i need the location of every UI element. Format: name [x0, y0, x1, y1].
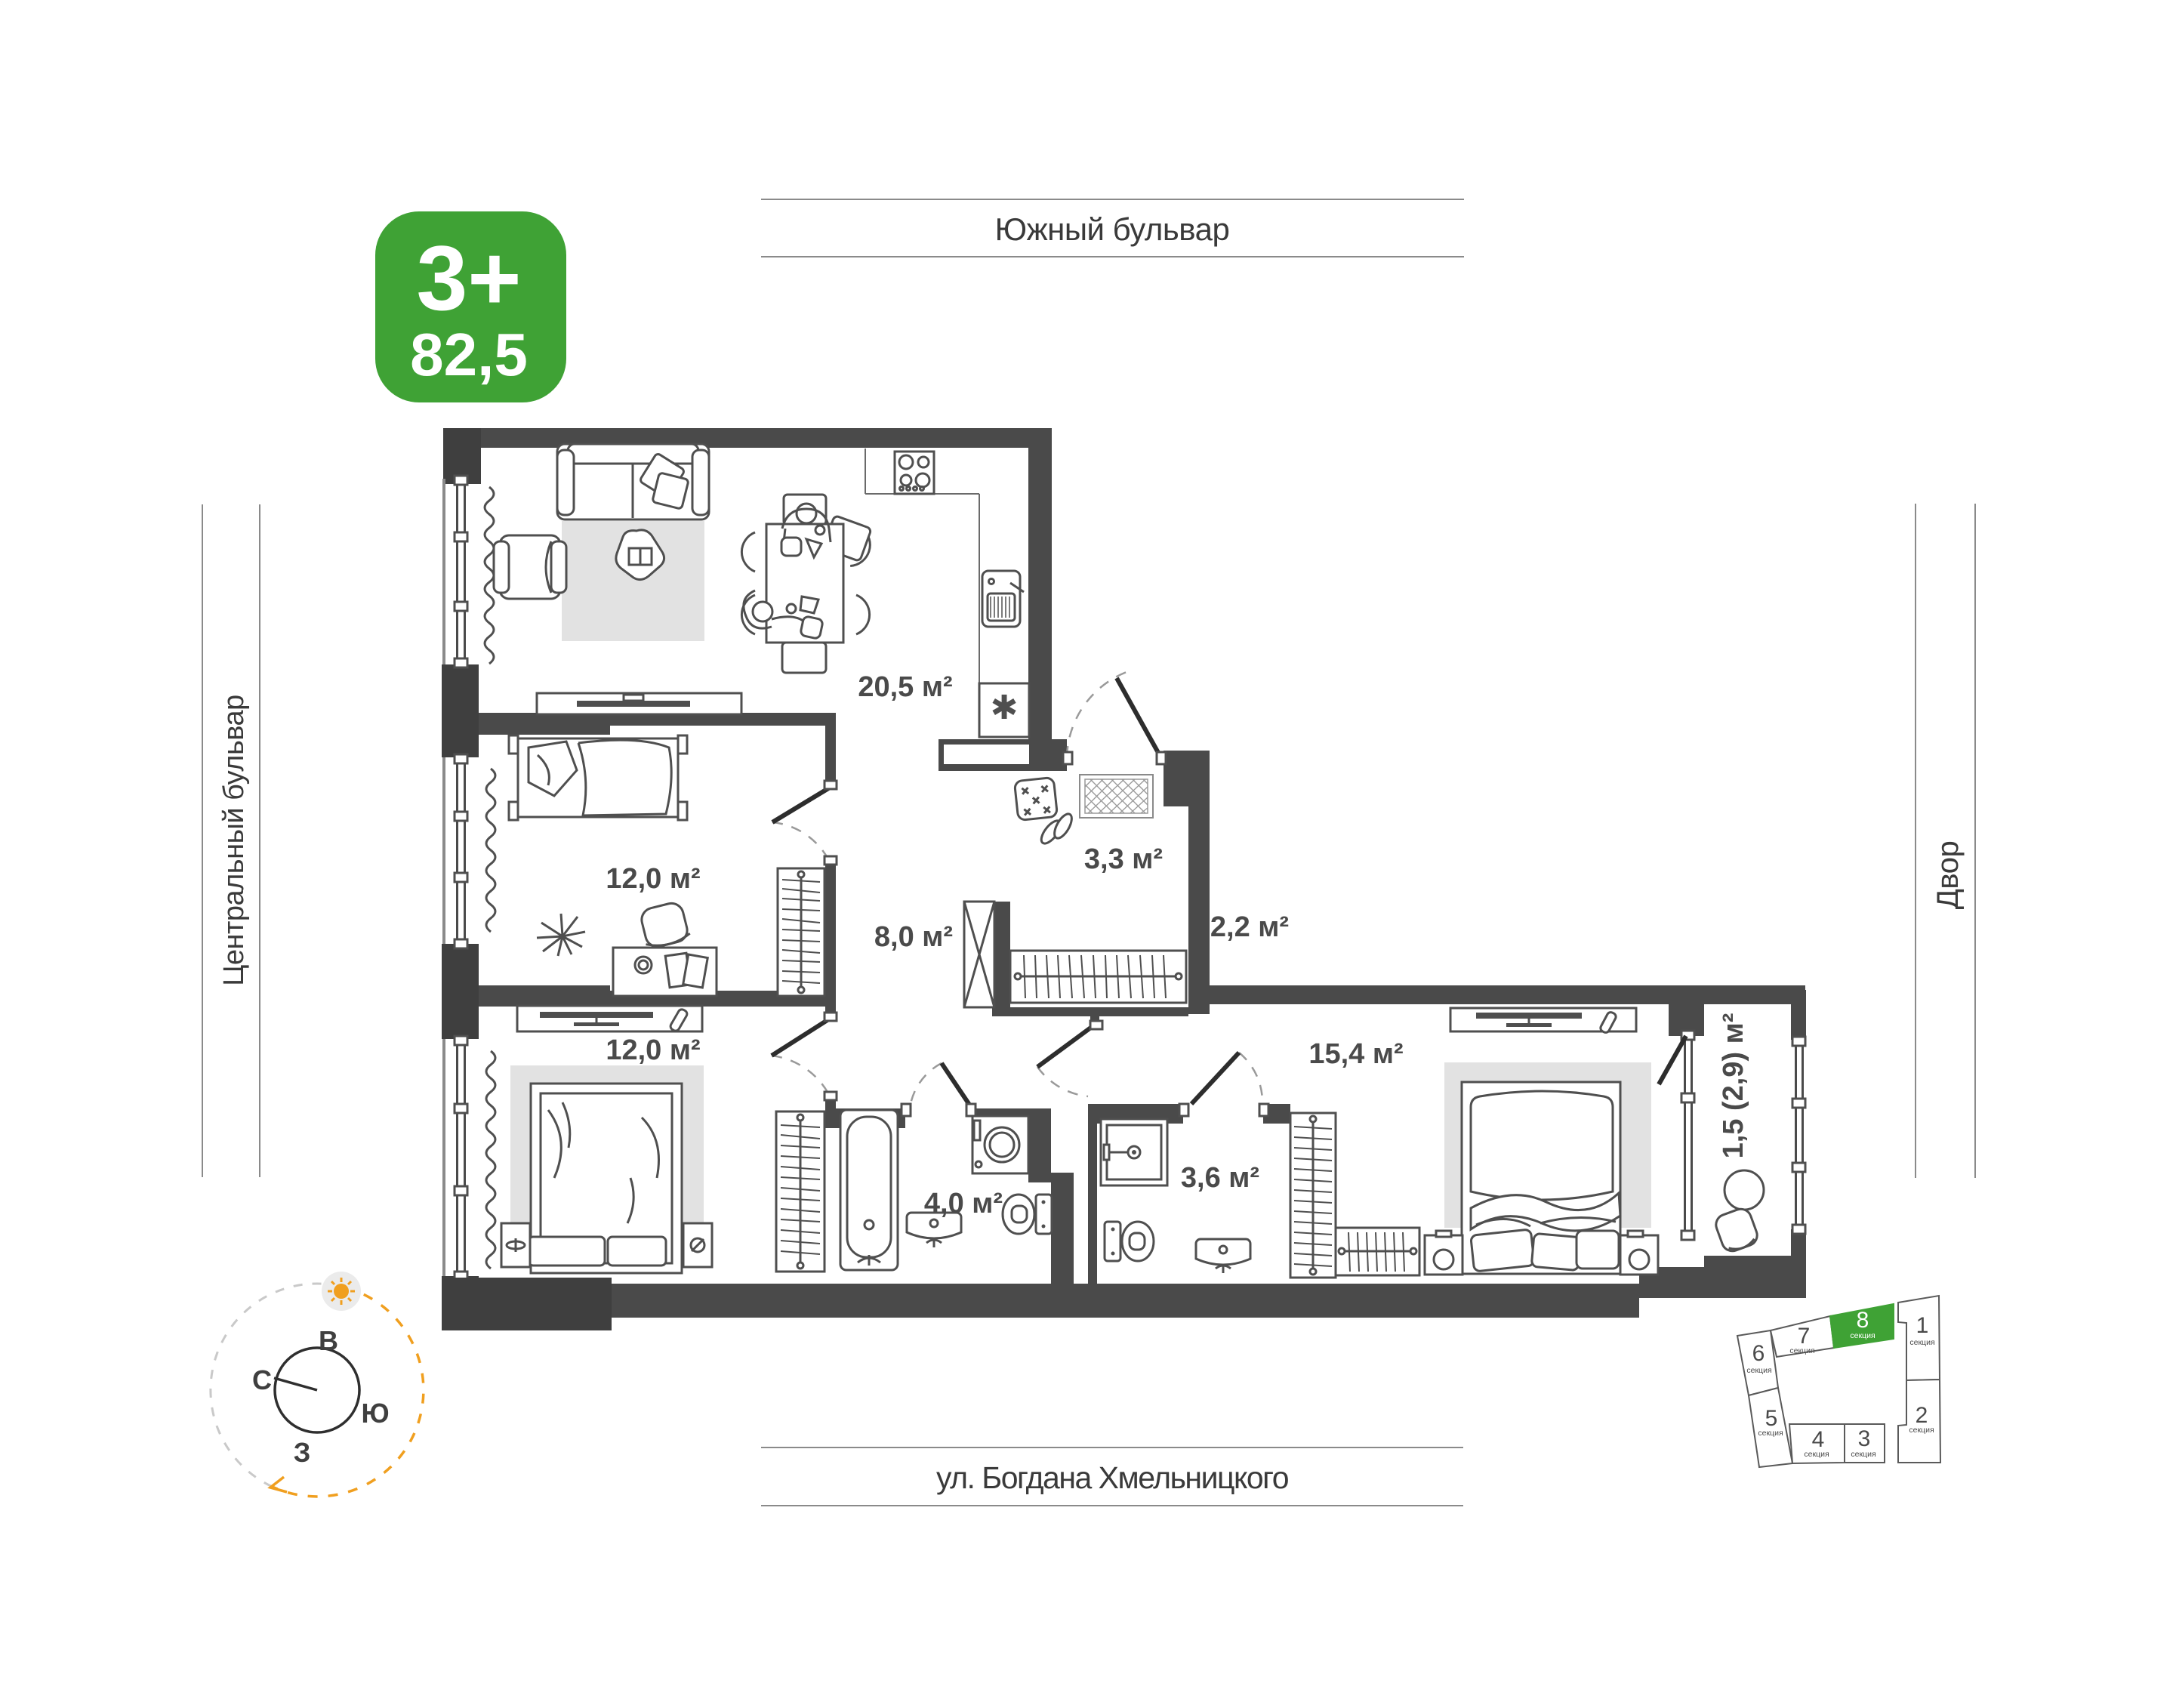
svg-text:82,5: 82,5	[410, 321, 528, 388]
svg-text:3,6 м²: 3,6 м²	[1181, 1162, 1259, 1194]
svg-text:20,5 м²: 20,5 м²	[858, 671, 952, 703]
svg-text:2: 2	[1916, 1403, 1928, 1428]
svg-text:4,0 м²: 4,0 м²	[924, 1188, 1003, 1219]
svg-text:Центральный бульвар: Центральный бульвар	[218, 695, 250, 986]
svg-text:7: 7	[1798, 1324, 1811, 1349]
svg-text:Южный бульвар: Южный бульвар	[995, 211, 1230, 247]
svg-text:З: З	[294, 1437, 311, 1468]
svg-text:12,0 м²: 12,0 м²	[606, 1034, 700, 1066]
svg-text:3: 3	[1858, 1426, 1871, 1451]
svg-text:1: 1	[1916, 1313, 1929, 1338]
svg-text:ул. Богдана Хмельницкого: ул. Богдана Хмельницкого	[936, 1460, 1289, 1495]
svg-text:В: В	[319, 1325, 338, 1356]
svg-text:6: 6	[1752, 1341, 1765, 1366]
svg-text:5: 5	[1765, 1406, 1778, 1431]
svg-text:15,4 м²: 15,4 м²	[1308, 1038, 1403, 1070]
svg-text:2,2 м²: 2,2 м²	[1210, 911, 1289, 943]
svg-text:секция: секция	[1851, 1450, 1875, 1459]
svg-text:Двор: Двор	[1931, 841, 1965, 909]
svg-text:секция: секция	[1909, 1426, 1934, 1435]
svg-text:секция: секция	[1789, 1346, 1814, 1355]
svg-text:секция: секция	[1850, 1331, 1875, 1340]
svg-text:секция: секция	[1804, 1450, 1829, 1459]
svg-text:8,0 м²: 8,0 м²	[874, 921, 953, 953]
svg-text:С: С	[252, 1364, 272, 1395]
svg-text:8: 8	[1857, 1308, 1869, 1333]
svg-text:Ю: Ю	[361, 1398, 389, 1429]
svg-text:4: 4	[1812, 1427, 1825, 1452]
svg-text:1,5 (2,9) м²: 1,5 (2,9) м²	[1718, 1013, 1749, 1159]
svg-text:✱: ✱	[991, 689, 1019, 726]
svg-text:3+: 3+	[416, 227, 521, 329]
svg-text:секция: секция	[1758, 1429, 1783, 1438]
svg-text:12,0 м²: 12,0 м²	[606, 863, 700, 895]
svg-text:3,3 м²: 3,3 м²	[1084, 843, 1163, 875]
svg-text:секция: секция	[1909, 1338, 1934, 1347]
svg-text:секция: секция	[1746, 1366, 1771, 1375]
